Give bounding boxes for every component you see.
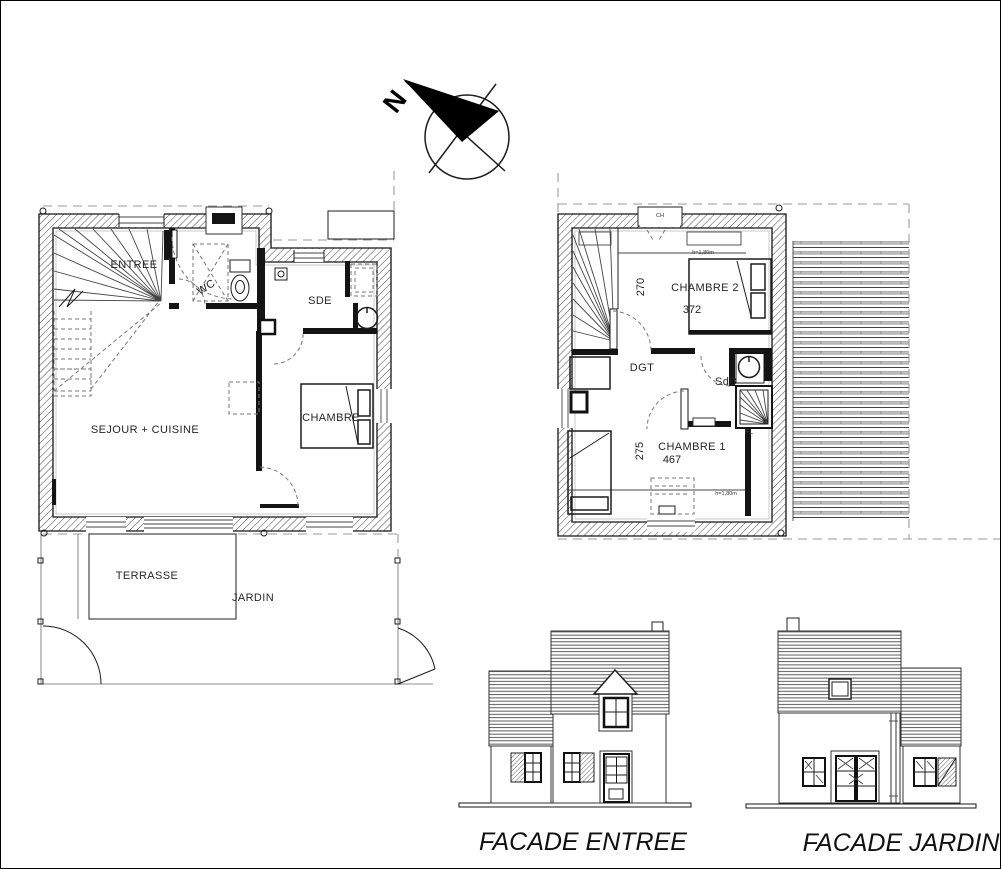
window-with-shutter bbox=[914, 758, 956, 786]
bed bbox=[568, 357, 611, 514]
window-with-shutters bbox=[511, 753, 541, 782]
shower bbox=[351, 264, 377, 296]
staircase bbox=[54, 229, 163, 391]
roof-right-wing bbox=[901, 668, 961, 746]
room-label-chambre1: CHAMBRE 1 bbox=[658, 441, 726, 453]
north-label: N bbox=[377, 85, 413, 119]
window-with-shutters bbox=[564, 753, 594, 782]
architectural-drawing: N bbox=[1, 1, 1000, 868]
garden-area: TERRASSE JARDIN bbox=[38, 530, 435, 684]
interior-wall bbox=[745, 428, 751, 516]
room-label-sejour: SEJOUR + CUISINE bbox=[91, 424, 199, 436]
floor-plan-sheet: N bbox=[0, 0, 1001, 869]
exterior-walls bbox=[558, 214, 786, 536]
ground-line bbox=[746, 804, 976, 808]
window bbox=[306, 517, 353, 532]
annex-outline bbox=[328, 211, 394, 239]
chimney bbox=[787, 618, 799, 632]
closet-label: PL bbox=[745, 429, 754, 436]
kitchen-unit bbox=[53, 369, 91, 396]
roof-plan-strip bbox=[793, 241, 909, 521]
facade-entree-label: FACADE ENTREE bbox=[479, 828, 687, 856]
room-label-chambre: CHAMBRE bbox=[302, 412, 360, 424]
radiator bbox=[52, 479, 56, 505]
dim-275: 275 bbox=[634, 442, 646, 460]
roof-window-box: CH bbox=[638, 207, 682, 240]
jardin-label: JARDIN bbox=[232, 592, 274, 604]
front-door bbox=[600, 751, 632, 803]
door-leaf bbox=[260, 504, 299, 508]
room-label-dgt: DGT bbox=[630, 362, 654, 374]
facade-entree-elevation: FACADE ENTREE bbox=[459, 622, 691, 856]
shower bbox=[736, 386, 772, 428]
room-label-wc: WC bbox=[195, 277, 218, 297]
closet bbox=[687, 232, 741, 245]
french-doors bbox=[831, 751, 879, 803]
washbasin bbox=[693, 418, 715, 426]
desk-dashed bbox=[651, 478, 694, 514]
window bbox=[647, 516, 695, 532]
ground-floor-plan: ENTREE WC SDE CHAMBRE SEJOUR + CUISINE bbox=[39, 207, 392, 532]
bed bbox=[689, 259, 771, 334]
exterior-walls bbox=[39, 214, 391, 531]
room-label-sde: SDE bbox=[308, 295, 332, 307]
room-label-entree: ENTREE bbox=[110, 259, 157, 271]
door-leaf bbox=[681, 389, 688, 429]
window bbox=[86, 517, 126, 532]
door-swing bbox=[273, 334, 303, 364]
window bbox=[376, 389, 392, 423]
first-floor-plan: CH h=1,80m h=1,80m bbox=[557, 204, 1000, 539]
roof-window-label: CH bbox=[656, 213, 664, 219]
compass-rose: N bbox=[377, 79, 509, 179]
facade-jardin-label: FACADE JARDIN bbox=[803, 829, 1000, 857]
gate-swing bbox=[398, 628, 435, 684]
door-swing bbox=[647, 391, 684, 429]
roof-window bbox=[829, 679, 851, 699]
facade-jardin-elevation: FACADE JARDIN bbox=[746, 618, 1000, 857]
gate-swing bbox=[43, 626, 101, 684]
room-label-chambre2: CHAMBRE 2 bbox=[671, 282, 739, 294]
window bbox=[294, 249, 324, 262]
door-swing bbox=[613, 311, 651, 351]
ground-line bbox=[459, 803, 691, 807]
floor-drain bbox=[275, 268, 287, 280]
door-leaf bbox=[260, 320, 275, 334]
roof-left-wing bbox=[489, 671, 553, 746]
dim-270: 270 bbox=[635, 278, 647, 296]
room-label-sdb: SdB bbox=[715, 376, 737, 388]
dim-372: 372 bbox=[683, 304, 701, 316]
window bbox=[119, 213, 164, 227]
interior-wall bbox=[257, 248, 265, 331]
sliding-bay-window bbox=[144, 517, 233, 532]
toilet bbox=[230, 260, 250, 301]
entry-porch bbox=[206, 207, 242, 234]
terrasse-label: TERRASSE bbox=[116, 570, 179, 582]
dim-467: 467 bbox=[663, 454, 681, 466]
height-note-top: h=1,80m bbox=[692, 250, 714, 256]
door-swing bbox=[259, 467, 298, 506]
door-leaf bbox=[164, 230, 170, 260]
height-note-bottom: h=1,80m bbox=[715, 491, 737, 497]
kitchen-unit bbox=[229, 382, 259, 414]
window bbox=[803, 758, 825, 786]
roof-main bbox=[778, 631, 901, 713]
door-leaf bbox=[610, 309, 617, 349]
north-arrow bbox=[403, 79, 499, 142]
